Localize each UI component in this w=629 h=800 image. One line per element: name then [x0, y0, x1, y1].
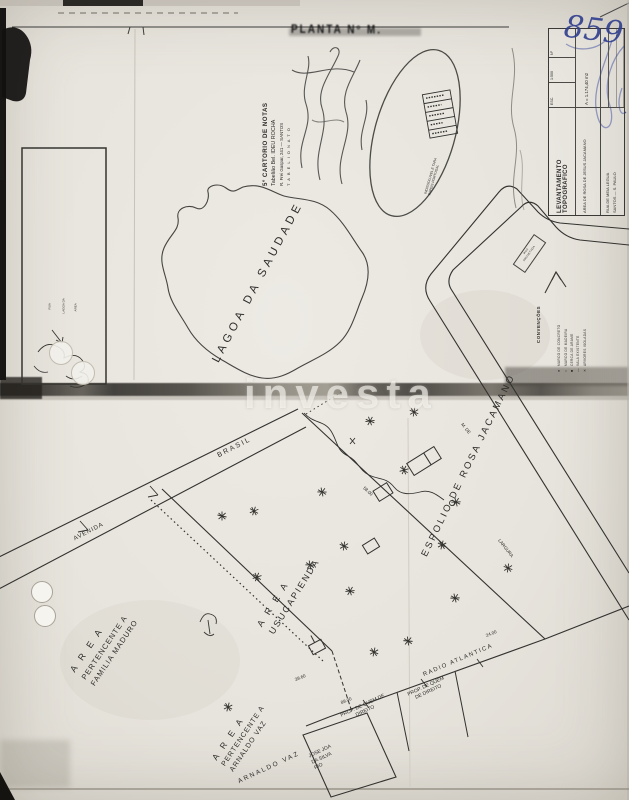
notary-stamp-line3: R. Frei Gaspar, 241 — SANTOS	[279, 30, 284, 186]
handwritten-page-number: 859	[562, 9, 625, 52]
smudged-plan-stamp: PLANTA Nº M.	[291, 24, 382, 37]
legend-symbol: ○	[564, 368, 568, 372]
north-arrow	[545, 272, 566, 293]
legend-title: CONVENÇÕES	[536, 306, 541, 343]
punch-hole-faint	[71, 361, 95, 385]
title-block-loc1: RUA DE MEIA LEGUA	[605, 110, 610, 213]
photo-watermark: investa	[244, 370, 438, 418]
situacao-label-3: AREA	[75, 303, 78, 311]
legend-symbol: ✕	[583, 368, 587, 372]
title-block: LEVANTAMENTO TOPOGRAFICO ESC. 1:500 Nº A…	[548, 28, 625, 216]
legend-symbol: —	[576, 368, 580, 372]
situacao-label-2: LAGOA DA	[63, 298, 66, 313]
legend-item: ✕ ARVORES ISOLADAS	[582, 300, 588, 372]
legend-symbol: ■	[570, 368, 574, 372]
legend-symbol: ●	[557, 368, 561, 372]
punch-hole	[31, 581, 53, 603]
legend-item-label: CERCA DE ARAME	[570, 333, 574, 366]
legend-item-label: MARCO DE MADEIRA	[564, 329, 568, 366]
notary-stamp-line2: Tabelião Bel. IDEU ROCHA	[271, 30, 277, 186]
legend: ● MARCO DE CONCRETO ○ MARCO DE MADEIRA ■…	[556, 300, 600, 372]
tree-sketch	[200, 614, 216, 636]
legend-item-label: MARCO DE CONCRETO	[557, 325, 561, 366]
title-block-esc-cell: ESC.	[549, 82, 575, 107]
title-block-loc2: SANTOS — S. PAULO	[612, 110, 617, 213]
title-block-scale-cell: 1:500	[549, 57, 575, 82]
legend-item-label: ARVORES ISOLADAS	[583, 329, 587, 366]
road-brasil	[0, 409, 306, 590]
notary-seal	[353, 39, 477, 226]
notary-stamp-line4: T A B E L I O N A T O	[286, 30, 291, 186]
title-block-title: LEVANTAMENTO TOPOGRAFICO	[549, 107, 575, 215]
title-block-area-line: AREA DE ROSA DE JESUS JACAMANO	[576, 107, 600, 215]
punch-hole	[34, 605, 56, 627]
title-block-location: RUA DE MEIA LEGUA SANTOS — S. PAULO	[601, 107, 624, 215]
punch-hole-faint	[49, 341, 73, 365]
photocopy-edge-marks	[0, 8, 31, 800]
situacao-label-1: RUA	[49, 303, 52, 309]
legend-item-label: VALA EXISTENTE	[576, 335, 580, 366]
pencil-marginalia	[511, 48, 524, 210]
scanned-survey-map-page: investa	[0, 0, 629, 800]
notary-stamp-text: 5º CARTORIO DE NOTAS Tabelião Bel. IDEU …	[262, 30, 307, 186]
notary-stamp-line1: 5º CARTORIO DE NOTAS	[262, 30, 269, 186]
